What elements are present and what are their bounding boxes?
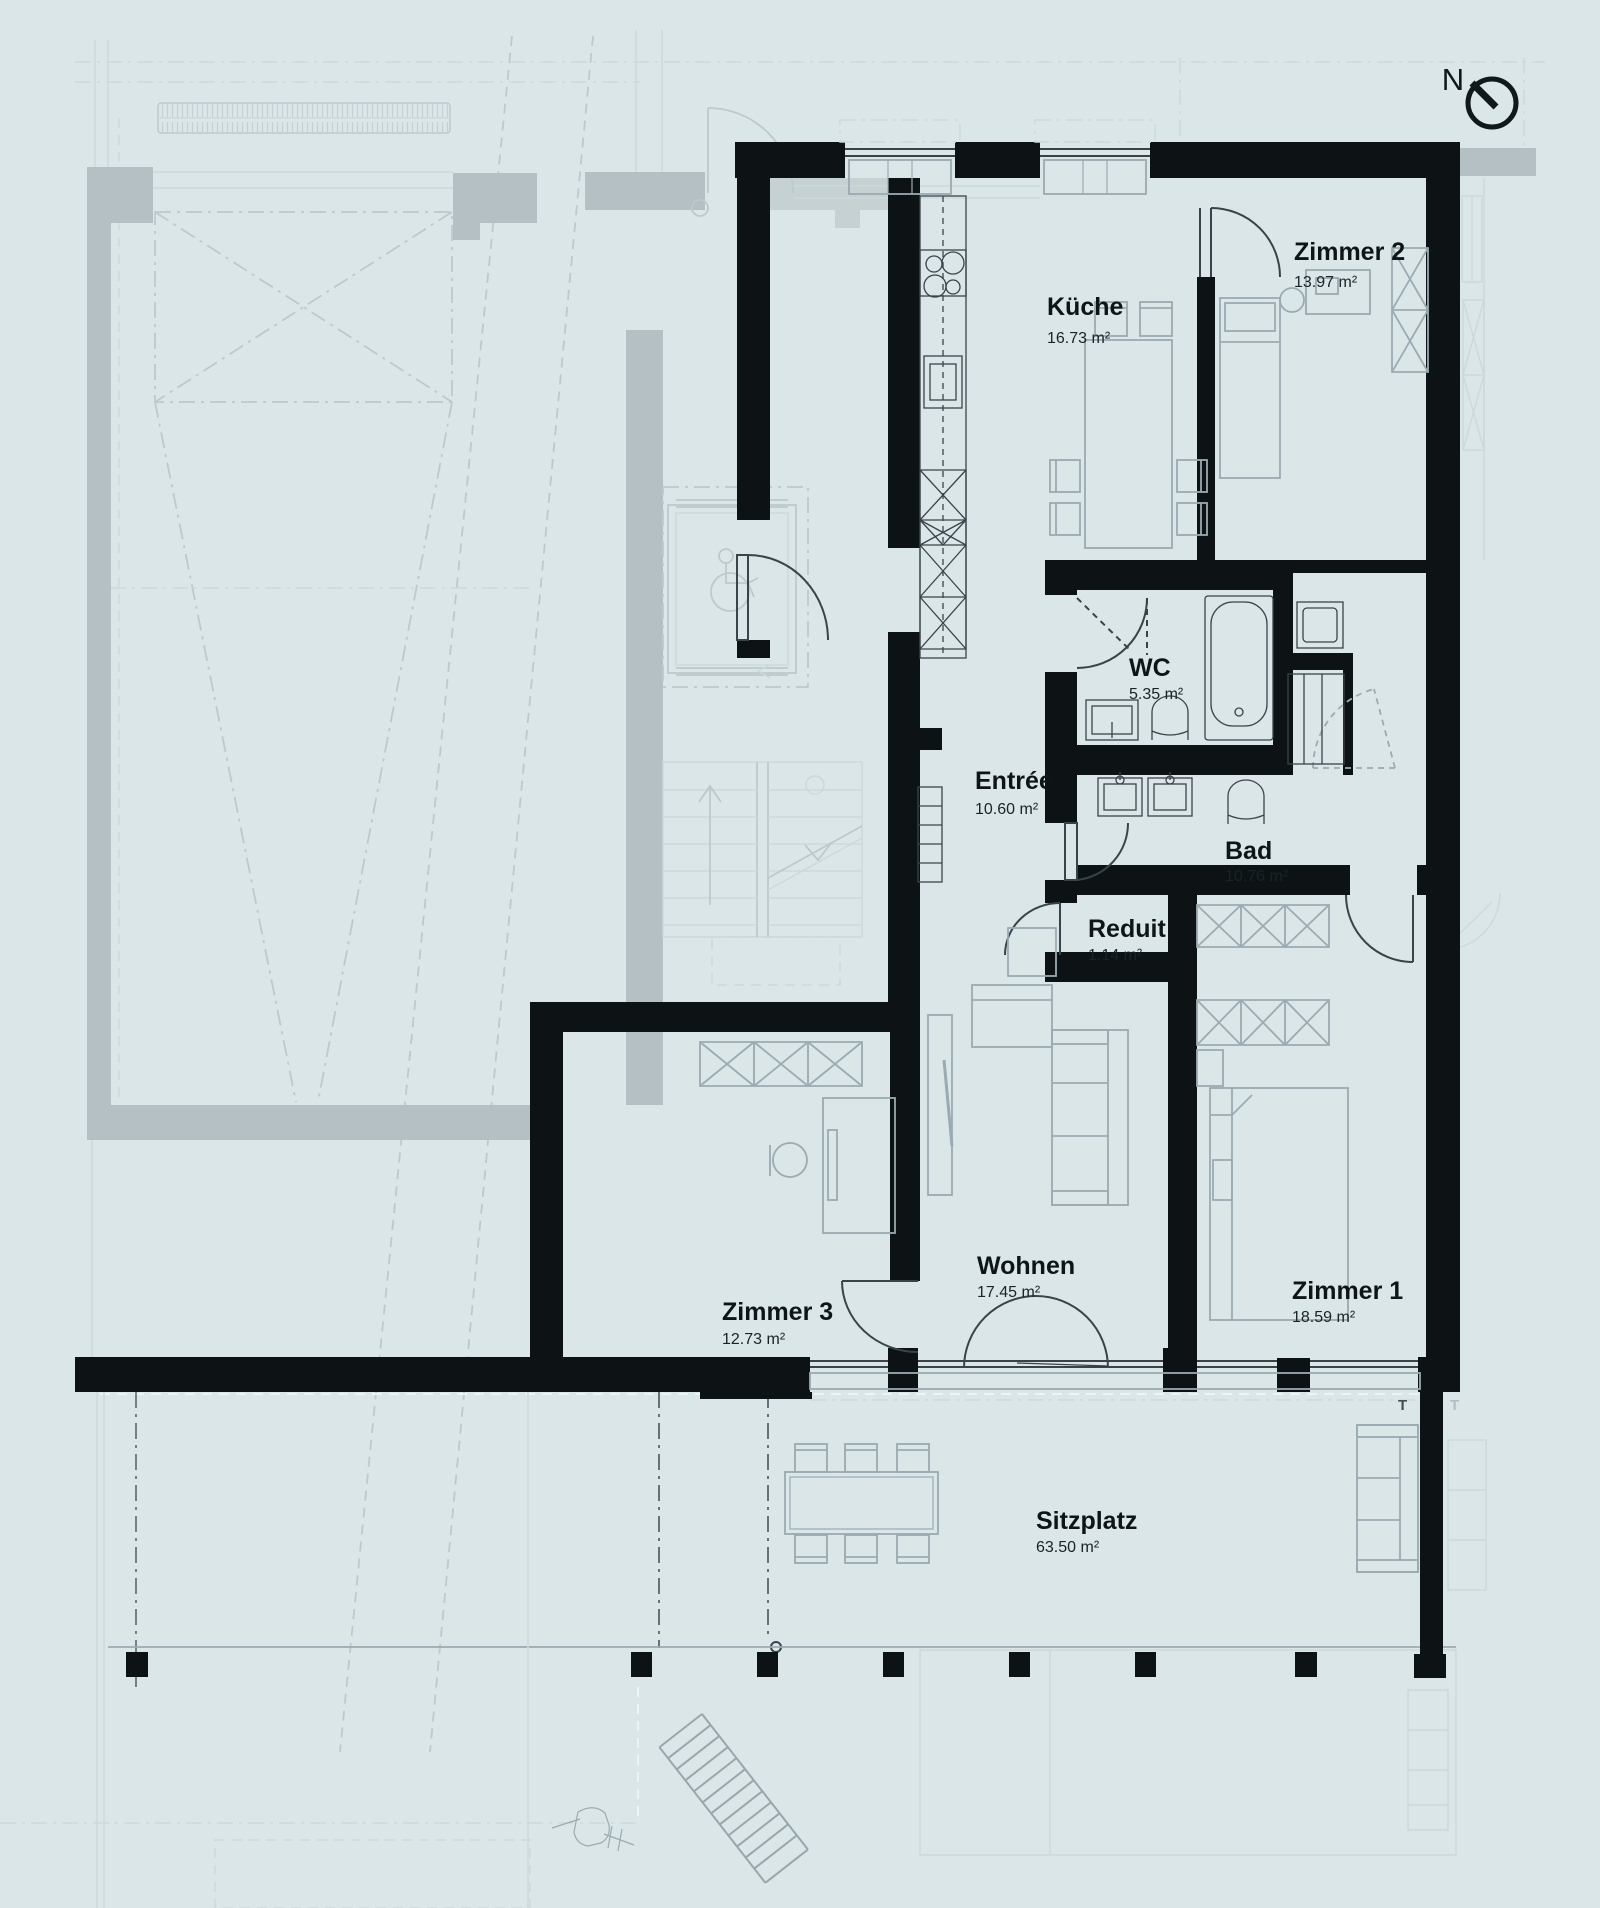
room-area: 1.14 m² — [1088, 947, 1143, 964]
desk — [823, 1098, 895, 1233]
room-name: Sitzplatz — [1036, 1507, 1137, 1535]
outdoor-dining-table — [785, 1444, 938, 1563]
grating-hatch — [158, 103, 450, 133]
floorplan-canvas: Küche 16.73 m² Zimmer 2 13.97 m² WC 5.35… — [0, 0, 1600, 1908]
monitor — [828, 1130, 837, 1200]
room-label-zimmer2: Zimmer 2 13.97 m² — [1294, 238, 1405, 291]
zimmer2-window — [1035, 120, 1155, 194]
partition-marker-faded: T — [1450, 1397, 1459, 1414]
room-area: 18.59 m² — [1292, 1309, 1356, 1326]
outdoor-sofa — [1357, 1425, 1418, 1572]
room-label-zimmer3: Zimmer 3 12.73 m² — [722, 1298, 833, 1348]
room-area: 16.73 m² — [1047, 330, 1111, 347]
desk-chair — [773, 1143, 807, 1177]
terrace — [100, 1392, 1486, 1690]
room-name: Reduit — [1088, 915, 1166, 943]
north-label: N — [1442, 62, 1464, 97]
north-compass-icon: N — [1442, 62, 1516, 127]
room-label-wohnen: Wohnen 17.45 m² — [977, 1252, 1075, 1301]
kitchen-cabinets — [920, 196, 966, 658]
room-label-entree: Entrée 10.60 m² — [975, 767, 1053, 818]
room-area: 5.35 m² — [1129, 686, 1184, 703]
elevator — [663, 487, 808, 687]
partition-marker: T — [1398, 1397, 1407, 1414]
sofa — [1052, 1030, 1128, 1205]
zimmer2-door — [1200, 208, 1280, 277]
floorplan-drawing: Küche 16.73 m² Zimmer 2 13.97 m² WC 5.35… — [0, 0, 1600, 1908]
room-area: 10.60 m² — [975, 801, 1039, 818]
site-lines-bottom — [0, 1392, 1456, 1908]
zimmer1-furniture — [1197, 905, 1348, 1320]
room-labels: Küche 16.73 m² Zimmer 2 13.97 m² WC 5.35… — [722, 238, 1459, 1556]
armchair — [972, 985, 1052, 1047]
room-name: Wohnen — [977, 1252, 1075, 1280]
entree-wardrobe — [918, 787, 942, 882]
room-area: 13.97 m² — [1294, 274, 1358, 291]
ladder — [659, 1714, 807, 1883]
room-area: 17.45 m² — [977, 1284, 1041, 1301]
room-name: Entrée — [975, 767, 1053, 795]
room-name: Küche — [1047, 293, 1124, 321]
room-name: Bad — [1225, 837, 1272, 865]
hob-icon — [924, 252, 964, 297]
room-area: 63.50 m² — [1036, 1539, 1100, 1556]
wheelchair-icon — [711, 549, 758, 611]
room-name: Zimmer 2 — [1294, 238, 1405, 266]
zimmer1-door — [1346, 895, 1413, 962]
void-cross — [110, 212, 530, 1102]
shower-door-swing — [1313, 689, 1395, 768]
zimmer3-door — [842, 1281, 918, 1352]
room-name: WC — [1129, 654, 1171, 682]
staircase — [663, 762, 862, 985]
room-label-kueche: Küche 16.73 m² — [1047, 293, 1124, 347]
room-name: Zimmer 1 — [1292, 1277, 1403, 1305]
room-area: 10.76 m² — [1225, 868, 1289, 885]
room-label-bad: Bad 10.76 m² — [1225, 837, 1289, 885]
apartment-entry-door — [737, 555, 828, 640]
room-area: 12.73 m² — [722, 1331, 786, 1348]
zimmer3-furniture — [700, 1042, 895, 1233]
bathtub — [1205, 596, 1273, 740]
utility-symbol — [552, 1808, 634, 1851]
tv — [944, 1060, 952, 1146]
terrace-pillars — [126, 1652, 1446, 1678]
faded-lounger — [1408, 1690, 1448, 1830]
room-label-sitzplatz: Sitzplatz 63.50 m² — [1036, 1507, 1137, 1556]
room-name: Zimmer 3 — [722, 1298, 833, 1326]
faded-neighbour-sofa — [1448, 1440, 1486, 1590]
toilet-icon — [1228, 780, 1264, 824]
reduit-door — [1005, 903, 1060, 955]
bad-fixtures — [1098, 602, 1344, 824]
room-label-zimmer1: Zimmer 1 18.59 m² — [1292, 1277, 1403, 1326]
room-label-wc: WC 5.35 m² — [1129, 654, 1184, 703]
wohnen-terrace-door — [964, 1296, 1108, 1368]
